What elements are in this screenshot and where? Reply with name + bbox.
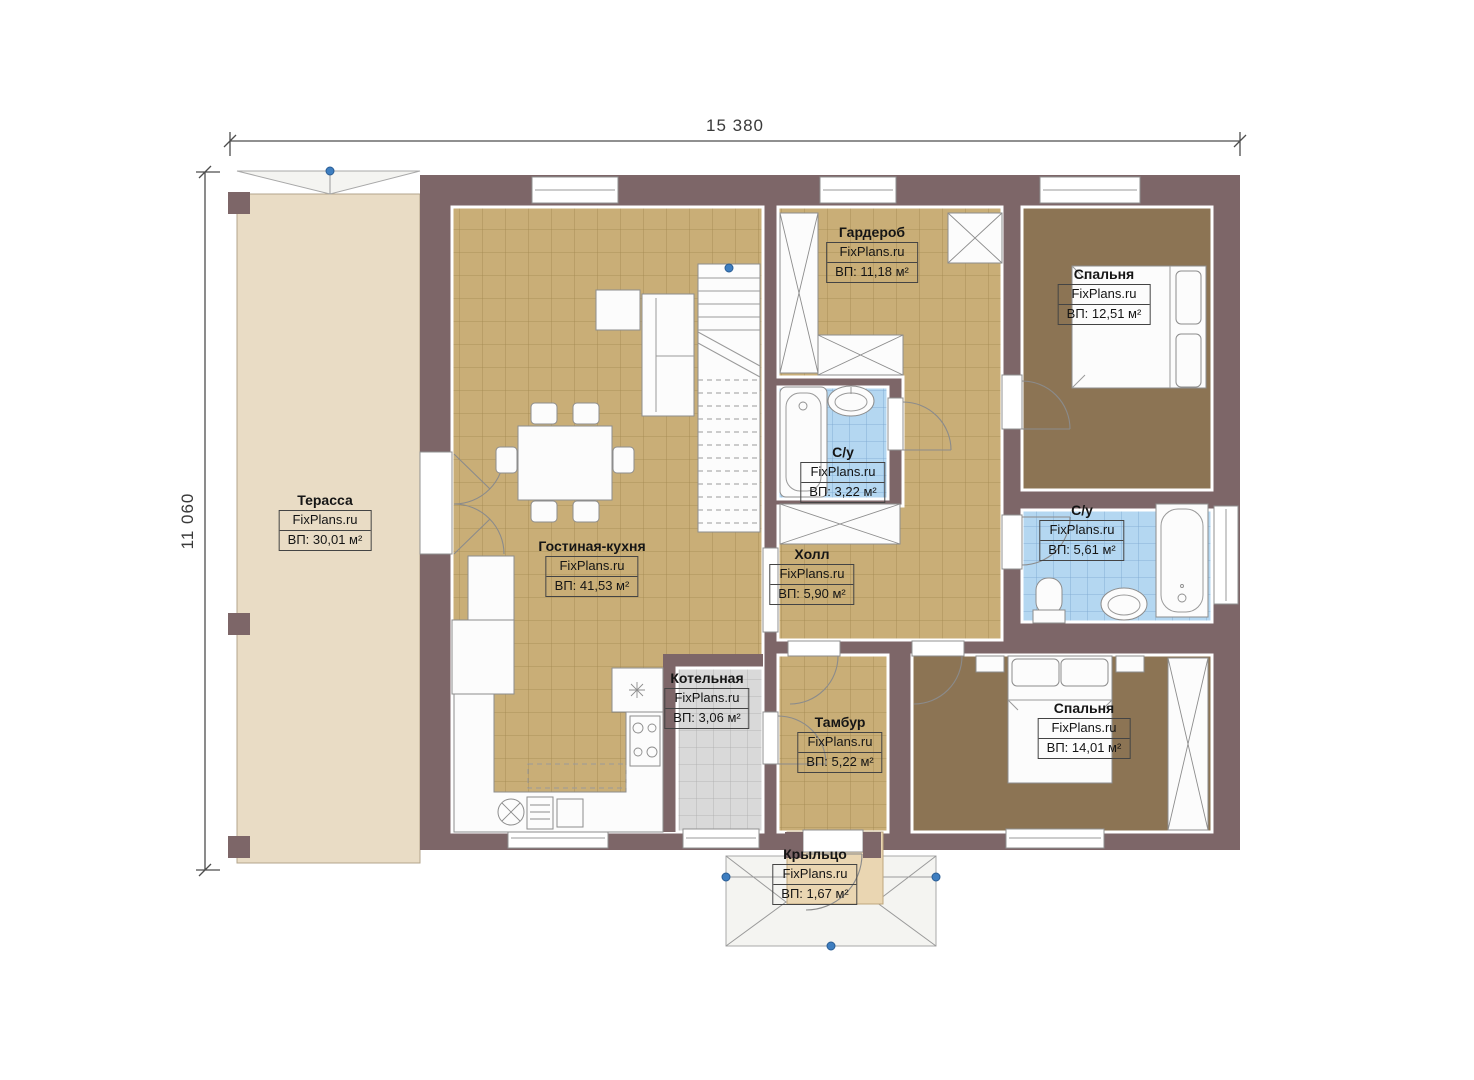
bathtub bbox=[1156, 504, 1208, 617]
terrace-post bbox=[228, 613, 250, 635]
room-info-box: FixPlans.ru ВП: 12,51 м² bbox=[1058, 284, 1151, 325]
room-info-box: FixPlans.ru ВП: 5,22 м² bbox=[797, 732, 882, 773]
stair-marker-icon bbox=[725, 264, 733, 272]
dishwasher bbox=[527, 797, 553, 829]
boiler-wall bbox=[663, 654, 763, 668]
watermark-text: FixPlans.ru bbox=[1059, 285, 1150, 305]
bathroom-small-door-opening bbox=[888, 398, 903, 450]
watermark-text: FixPlans.ru bbox=[280, 511, 371, 531]
room-info-box: FixPlans.ru ВП: 11,18 м² bbox=[826, 242, 918, 283]
dining-table bbox=[518, 426, 612, 500]
watermark-text: FixPlans.ru bbox=[827, 243, 917, 263]
bedroom-bottom-door-opening bbox=[912, 641, 964, 656]
room-name: С/у bbox=[1039, 502, 1124, 518]
porch-marker-icon bbox=[722, 873, 730, 881]
kitchen-unit bbox=[452, 620, 514, 694]
window bbox=[1006, 829, 1104, 848]
room-info-box: FixPlans.ru ВП: 30,01 м² bbox=[279, 510, 372, 551]
watermark-text: FixPlans.ru bbox=[798, 733, 881, 753]
room-area: ВП: 30,01 м² bbox=[280, 531, 371, 550]
chair bbox=[531, 501, 557, 522]
room-info-box: FixPlans.ru ВП: 3,06 м² bbox=[664, 688, 749, 729]
vestibule-door-opening bbox=[788, 641, 840, 656]
room-label-terrace: Терасса FixPlans.ru ВП: 30,01 м² bbox=[279, 492, 372, 551]
room-label-porch: Крыльцо FixPlans.ru ВП: 1,67 м² bbox=[772, 846, 857, 905]
kitchen-cabinet bbox=[557, 799, 583, 827]
room-label-boiler: Котельная FixPlans.ru ВП: 3,06 м² bbox=[664, 670, 749, 729]
water-heater bbox=[612, 668, 663, 712]
room-area: ВП: 1,67 м² bbox=[773, 885, 856, 904]
terrace-post bbox=[228, 836, 250, 858]
room-name: Тамбур bbox=[797, 714, 882, 730]
pillow bbox=[1176, 334, 1201, 387]
window bbox=[1214, 506, 1238, 604]
watermark-text: FixPlans.ru bbox=[665, 689, 748, 709]
floor-plan-page: Терасса FixPlans.ru ВП: 30,01 м² Гостина… bbox=[0, 0, 1474, 1080]
boiler-door-opening bbox=[763, 712, 778, 764]
chair bbox=[573, 501, 599, 522]
watermark-text: FixPlans.ru bbox=[773, 865, 856, 885]
window bbox=[820, 177, 896, 203]
side-table bbox=[596, 290, 640, 330]
porch-marker-icon bbox=[932, 873, 940, 881]
window bbox=[1040, 177, 1140, 203]
watermark-text: FixPlans.ru bbox=[770, 565, 853, 585]
room-area: ВП: 3,06 м² bbox=[665, 709, 748, 728]
window bbox=[532, 177, 618, 203]
chair bbox=[531, 403, 557, 424]
room-area: ВП: 5,61 м² bbox=[1040, 541, 1123, 560]
bedroom-top-door-opening bbox=[1002, 375, 1022, 429]
room-label-bathroom-big: С/у FixPlans.ru ВП: 5,61 м² bbox=[1039, 502, 1124, 561]
pillow bbox=[1176, 271, 1201, 324]
room-name: Спальня bbox=[1058, 266, 1151, 282]
room-info-box: FixPlans.ru ВП: 3,22 м² bbox=[800, 462, 885, 503]
room-area: ВП: 11,18 м² bbox=[827, 263, 917, 282]
room-info-box: FixPlans.ru ВП: 5,61 м² bbox=[1039, 520, 1124, 561]
watermark-text: FixPlans.ru bbox=[1039, 719, 1130, 739]
bathroom-big-door-opening bbox=[1002, 515, 1022, 569]
watermark-text: FixPlans.ru bbox=[1040, 521, 1123, 541]
pillow bbox=[1012, 659, 1059, 686]
room-label-bedroom-bottom: Спальня FixPlans.ru ВП: 14,01 м² bbox=[1038, 700, 1131, 759]
pillow bbox=[1061, 659, 1108, 686]
kitchen-unit bbox=[468, 556, 514, 620]
dimension-height-label: 11 060 bbox=[178, 493, 198, 550]
room-info-box: FixPlans.ru ВП: 41,53 м² bbox=[546, 556, 639, 597]
room-area: ВП: 5,90 м² bbox=[770, 585, 853, 604]
room-label-vestibule: Тамбур FixPlans.ru ВП: 5,22 м² bbox=[797, 714, 882, 773]
room-area: ВП: 14,01 м² bbox=[1039, 739, 1130, 758]
toilet bbox=[1036, 578, 1062, 614]
porch-wall-stub bbox=[863, 832, 881, 858]
nightstand bbox=[1116, 656, 1144, 672]
room-label-bathroom-small: С/у FixPlans.ru ВП: 3,22 м² bbox=[800, 444, 885, 503]
room-label-living-kitchen: Гостиная-кухня FixPlans.ru ВП: 41,53 м² bbox=[538, 538, 645, 597]
toilet-tank bbox=[1033, 610, 1065, 623]
chair bbox=[496, 447, 517, 473]
room-info-box: FixPlans.ru ВП: 14,01 м² bbox=[1038, 718, 1131, 759]
window bbox=[683, 829, 759, 848]
watermark-text: FixPlans.ru bbox=[801, 463, 884, 483]
room-area: ВП: 41,53 м² bbox=[547, 577, 638, 596]
hall-closet bbox=[780, 504, 900, 544]
floor-plan-canvas bbox=[0, 0, 1474, 1080]
dimension-width-label: 15 380 bbox=[706, 116, 764, 136]
stove bbox=[630, 716, 660, 766]
sofa bbox=[642, 294, 694, 416]
terrace-post bbox=[228, 192, 250, 214]
terrace-door-opening bbox=[420, 452, 452, 554]
room-name: Терасса bbox=[279, 492, 372, 508]
watermark-text: FixPlans.ru bbox=[547, 557, 638, 577]
room-area: ВП: 5,22 м² bbox=[798, 753, 881, 772]
staircase bbox=[698, 264, 760, 532]
room-name: Котельная bbox=[664, 670, 749, 686]
room-name: Крыльцо bbox=[772, 846, 857, 862]
nightstand bbox=[976, 656, 1004, 672]
room-info-box: FixPlans.ru ВП: 5,90 м² bbox=[769, 564, 854, 605]
room-name: Холл bbox=[769, 546, 854, 562]
heater-star-icon bbox=[629, 682, 645, 698]
chair bbox=[573, 403, 599, 424]
room-name: Гостиная-кухня bbox=[538, 538, 645, 554]
chair bbox=[613, 447, 634, 473]
room-label-bedroom-top: Спальня FixPlans.ru ВП: 12,51 м² bbox=[1058, 266, 1151, 325]
room-label-wardrobe: Гардероб FixPlans.ru ВП: 11,18 м² bbox=[826, 224, 918, 283]
porch-marker-icon bbox=[827, 942, 835, 950]
awning-marker-icon bbox=[326, 167, 334, 175]
room-area: ВП: 3,22 м² bbox=[801, 483, 884, 502]
room-name: Спальня bbox=[1038, 700, 1131, 716]
room-area: ВП: 12,51 м² bbox=[1059, 305, 1150, 324]
room-name: Гардероб bbox=[826, 224, 918, 240]
room-label-hall: Холл FixPlans.ru ВП: 5,90 м² bbox=[769, 546, 854, 605]
room-info-box: FixPlans.ru ВП: 1,67 м² bbox=[772, 864, 857, 905]
room-name: С/у bbox=[800, 444, 885, 460]
